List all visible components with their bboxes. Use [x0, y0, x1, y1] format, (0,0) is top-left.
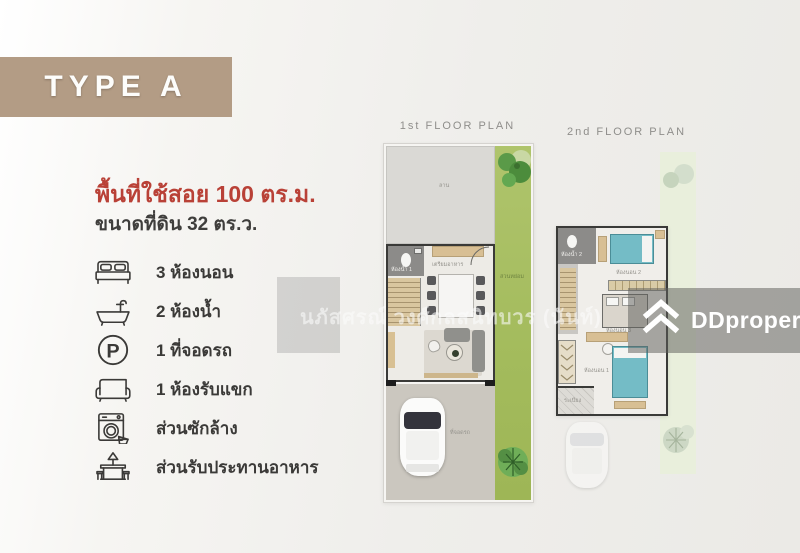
- tv-console: [424, 373, 478, 378]
- toilet-icon: [401, 253, 411, 267]
- car-windshield: [570, 433, 604, 446]
- amenity-label: ส่วนรับประทานอาหาร: [156, 454, 319, 481]
- land-size-text: ขนาดที่ดิน 32 ตร.ว.: [95, 209, 257, 239]
- terrace-label: ลาน: [439, 183, 449, 189]
- bedroom-1-label: ห้องนอน 1: [584, 368, 609, 374]
- amenity-row-laundry: ส่วนซักล้าง: [92, 412, 319, 444]
- side-bench: [388, 332, 395, 368]
- tree-icon: [495, 148, 531, 208]
- car-rear-window: [406, 464, 439, 472]
- second-floor-plan-title: 2nd FLOOR PLAN: [556, 126, 697, 138]
- tree-icon: [660, 160, 696, 210]
- bed-end-bench: [614, 401, 646, 409]
- terrace-area: ลาน: [386, 146, 495, 244]
- balcony: ระเบียง: [558, 386, 594, 414]
- car-roof: [406, 431, 439, 460]
- amenity-label: 1 ที่จอดรถ: [156, 337, 232, 364]
- parking-icon: P: [92, 333, 134, 367]
- pillow: [642, 236, 652, 262]
- tree-icon: [660, 414, 696, 470]
- plant-icon: [452, 350, 459, 357]
- amenity-label: ส่วนซักล้าง: [156, 415, 238, 442]
- car-roof: [572, 448, 602, 474]
- parking-area: ที่จอดรถ: [386, 384, 495, 500]
- garden-label: สวนหย่อม: [500, 274, 524, 280]
- coffee-table: [446, 344, 463, 361]
- pillow: [606, 297, 619, 306]
- chair: [427, 291, 436, 300]
- type-badge: TYPE A: [0, 57, 232, 117]
- bathroom-2: ห้องน้ำ 2: [558, 228, 596, 264]
- amenity-label: 2 ห้องน้ำ: [156, 298, 221, 325]
- amenity-row-dining: ส่วนรับประทานอาหาร: [92, 451, 319, 483]
- bedroom-2-label: ห้องนอน 2: [616, 270, 641, 276]
- washing-machine-icon: [92, 412, 134, 444]
- car-windshield: [404, 412, 441, 429]
- amenity-label: 1 ห้องรับแขก: [156, 376, 253, 403]
- usable-area-text: พื้นที่ใช้สอย 100 ตร.ม.: [95, 177, 316, 213]
- dining-table-icon: [92, 451, 134, 483]
- tree-icon: [495, 436, 531, 492]
- parking-label: ที่จอดรถ: [450, 430, 470, 436]
- bathroom-1-label: ห้องน้ำ 1: [391, 267, 412, 273]
- wardrobe: [558, 340, 576, 384]
- agent-watermark: นภัสศรณ์ วงศ์กลสนิทบวร (นันท์): [300, 301, 602, 333]
- amenity-row-living: 1 ห้องรับแขก: [92, 373, 319, 405]
- hanging-clothes-icon: [559, 341, 575, 383]
- type-badge-label: TYPE A: [44, 70, 187, 104]
- ddproperty-logo-icon: [639, 295, 683, 346]
- bench: [598, 236, 607, 262]
- gate-post: [485, 380, 495, 386]
- sink-icon: [414, 248, 422, 254]
- bathroom-2-label: ห้องน้ำ 2: [561, 252, 582, 258]
- car-ghost: [566, 422, 608, 488]
- bathroom-1: ห้องน้ำ 1: [388, 246, 424, 276]
- brand-watermark-band: DDproperty: [628, 288, 800, 353]
- first-floor-plan-title: 1st FLOOR PLAN: [383, 120, 532, 132]
- sofa-icon: [92, 375, 134, 403]
- bed-bedroom-1: [612, 346, 648, 398]
- desk: [586, 332, 628, 342]
- brochure-page: TYPE A พื้นที่ใช้สอย 100 ตร.ม. ขนาดที่ดิ…: [0, 0, 800, 553]
- chair: [427, 276, 436, 285]
- svg-text:P: P: [106, 341, 119, 363]
- kitchen-label: เตรียมอาหาร: [432, 262, 463, 268]
- sofa: [472, 330, 485, 372]
- door-arc: [470, 246, 490, 266]
- chair: [476, 276, 485, 285]
- chair: [476, 291, 485, 300]
- bed-bedroom-2: [610, 234, 654, 264]
- bed-icon: [92, 257, 134, 287]
- amenity-label: 3 ห้องนอน: [156, 259, 233, 286]
- bathtub-icon: [92, 296, 134, 326]
- nightstand: [655, 230, 665, 239]
- gate-post: [386, 380, 396, 386]
- balcony-label: ระเบียง: [564, 398, 581, 404]
- brand-watermark-text: DDproperty: [691, 307, 800, 334]
- car-top-view: [400, 398, 445, 476]
- toilet-icon: [567, 235, 577, 248]
